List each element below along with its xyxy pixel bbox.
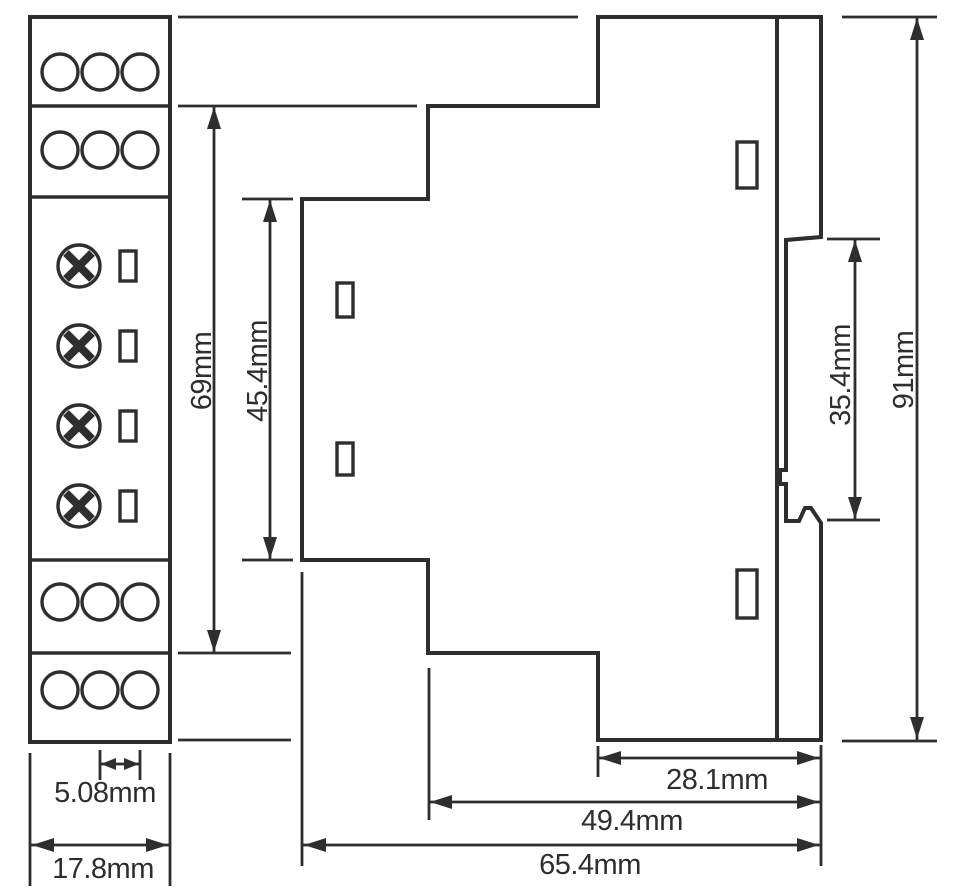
terminal-row-bottom-1 <box>42 584 158 620</box>
arrowhead-right-icon <box>124 758 139 770</box>
led-slot <box>120 331 136 361</box>
terminal-circle <box>82 672 118 708</box>
terminal-circle <box>42 54 78 90</box>
arrowhead-down-icon <box>910 717 924 739</box>
screw-cross-icon <box>66 253 92 279</box>
arrowhead-left-icon <box>101 758 116 770</box>
dim-label-28-1mm: 28.1mm <box>666 764 768 796</box>
arrowhead-left-icon <box>32 838 54 852</box>
arrowhead-up-icon <box>848 240 862 262</box>
screw-cross-icon <box>66 333 92 359</box>
terminal-circle <box>122 54 158 90</box>
dimension-rail-slot-height: 35.4mm <box>825 239 880 520</box>
terminal-circle <box>42 584 78 620</box>
arrowhead-left-icon <box>430 795 452 809</box>
dimension-mid-step-depth: 49.4mm <box>429 668 820 837</box>
arrowhead-down-icon <box>848 497 862 519</box>
dimension-drawing: 69mm 45.4mm 35.4mm 91mm 28.1mm <box>0 0 956 888</box>
dim-label-5-08mm: 5.08mm <box>54 777 156 809</box>
arrowhead-left-icon <box>304 838 326 852</box>
terminal-circle <box>122 132 158 168</box>
front-slot-top <box>337 283 353 317</box>
back-slot-top <box>737 142 757 188</box>
dim-label-91mm: 91mm <box>888 331 920 410</box>
arrowhead-right-icon <box>797 795 819 809</box>
dimension-body-height: 69mm <box>178 106 417 653</box>
arrowhead-right-icon <box>797 838 819 852</box>
arrowhead-right-icon <box>797 751 819 765</box>
arrowhead-up-icon <box>910 18 924 40</box>
screw-and-led-row-3 <box>58 405 136 447</box>
led-slot <box>120 251 136 281</box>
arrowhead-down-icon <box>263 537 277 559</box>
front-slot-bottom <box>337 443 353 475</box>
arrowhead-down-icon <box>207 630 221 652</box>
dimension-face-height: 45.4mm <box>242 199 293 560</box>
terminal-circle <box>122 672 158 708</box>
screw-and-led-row-4 <box>58 485 136 527</box>
terminal-circle <box>82 584 118 620</box>
projection-lines <box>178 17 578 740</box>
terminal-circle <box>82 132 118 168</box>
dimension-drawing-page: 69mm 45.4mm 35.4mm 91mm 28.1mm <box>0 0 956 888</box>
arrowhead-left-icon <box>599 751 621 765</box>
side-view-profile <box>302 17 821 740</box>
dim-label-69mm: 69mm <box>186 332 218 411</box>
terminal-row-top-2 <box>42 132 158 168</box>
terminal-row-bottom-2 <box>42 672 158 708</box>
arrowhead-up-icon <box>263 200 277 222</box>
front-view-body <box>30 17 170 742</box>
terminal-row-top-1 <box>42 54 158 90</box>
back-slot-bottom <box>737 570 757 618</box>
dim-label-35-4mm: 35.4mm <box>825 324 857 426</box>
terminal-circle <box>82 54 118 90</box>
terminal-circle <box>42 672 78 708</box>
screw-cross-icon <box>66 493 92 519</box>
screw-and-led-row-2 <box>58 325 136 367</box>
screw-cross-icon <box>66 413 92 439</box>
dim-label-17-8mm: 17.8mm <box>52 853 154 885</box>
side-view <box>302 17 821 740</box>
terminal-circle <box>42 132 78 168</box>
arrowhead-right-icon <box>146 838 168 852</box>
dim-label-49-4mm: 49.4mm <box>581 805 683 837</box>
led-slot <box>120 411 136 441</box>
dim-label-65-4mm: 65.4mm <box>539 849 641 881</box>
led-slot <box>120 491 136 521</box>
dim-label-45-4mm: 45.4mm <box>242 320 274 422</box>
dimension-terminal-pitch: 5.08mm <box>54 750 156 809</box>
front-view <box>30 17 170 742</box>
screw-and-led-row-1 <box>58 245 136 287</box>
terminal-circle <box>122 584 158 620</box>
arrowhead-up-icon <box>207 107 221 129</box>
